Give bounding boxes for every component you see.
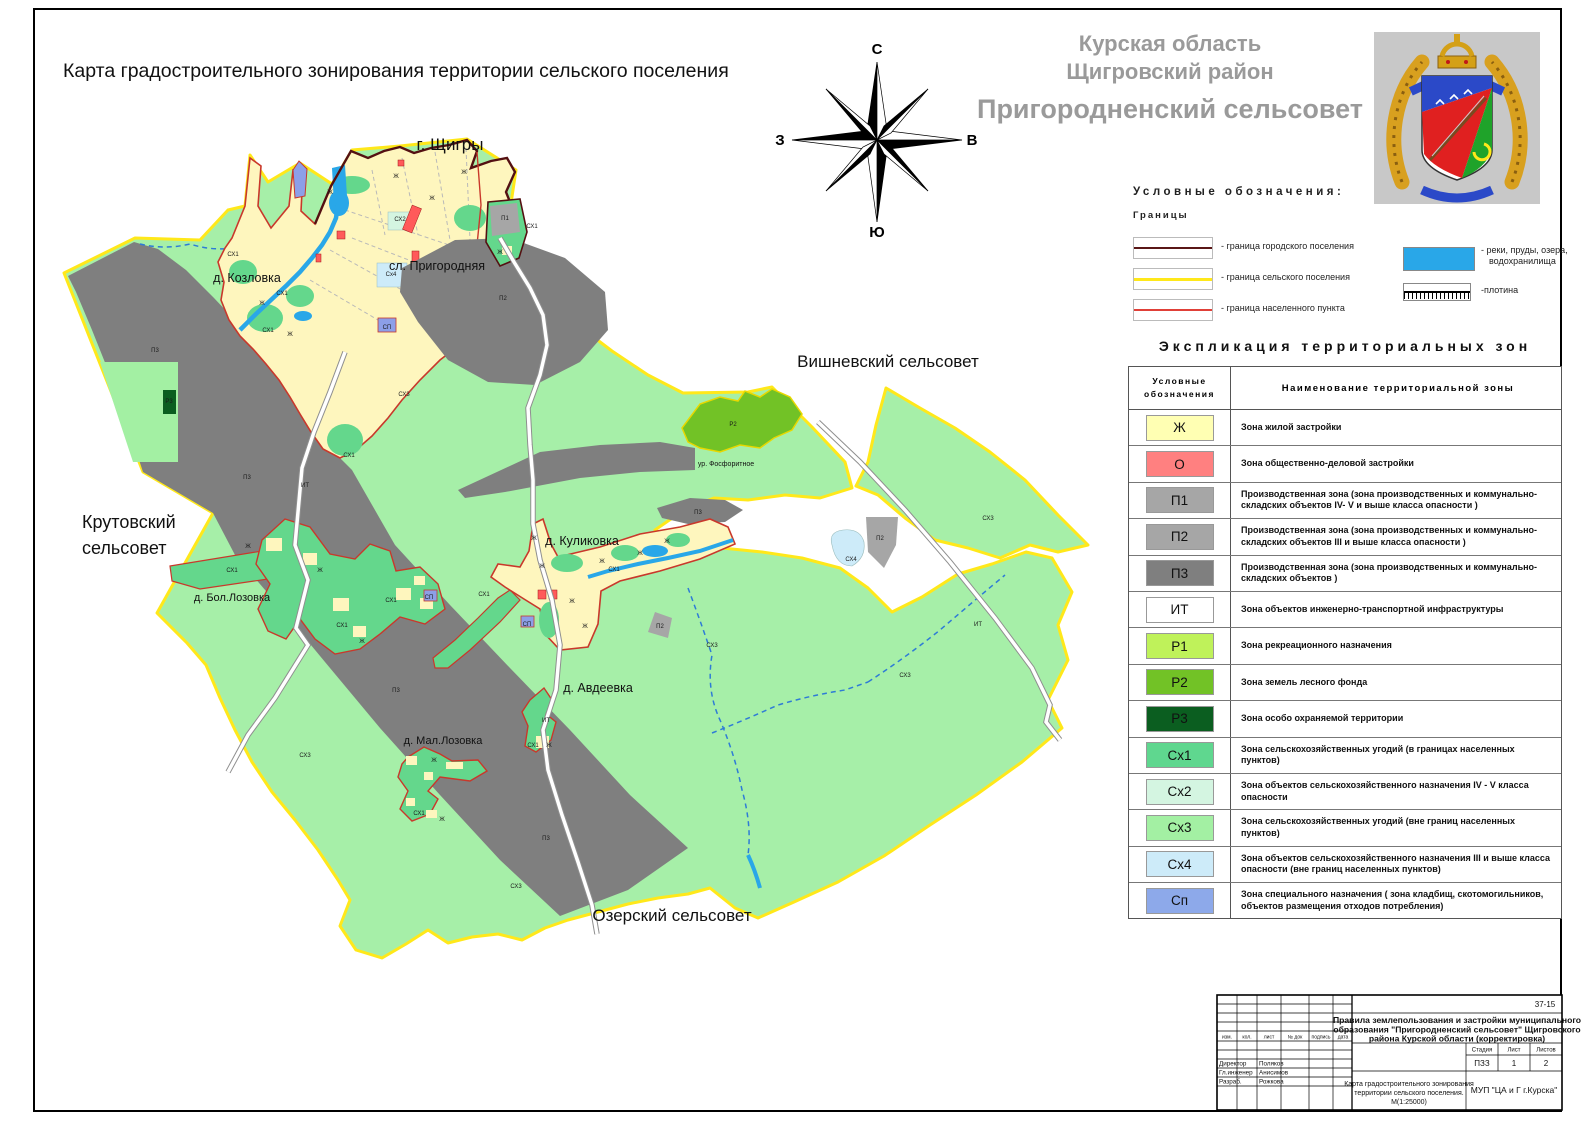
- zone-code-label: СХ1: [227, 252, 239, 258]
- zone-code-label: Ж: [317, 568, 323, 574]
- zone-row: Р1Зона рекреационного назначения: [1129, 628, 1561, 664]
- zone-code-label: Ж: [439, 817, 445, 823]
- zone-code-label: ИТ: [542, 718, 550, 724]
- organization: МУП "ЦА и Г г.Курска": [1471, 1085, 1558, 1095]
- zone-code-label: Ж: [539, 564, 545, 570]
- place-label: д. Бол.Лозовка: [194, 592, 271, 604]
- svg-text:ПЗЗ: ПЗЗ: [1474, 1059, 1490, 1068]
- title-block: 37-15 Правила землепользования и застрой…: [1217, 995, 1581, 1110]
- tb-col-header: подпись: [1312, 1035, 1331, 1041]
- zone-code-label: СХ3: [398, 392, 410, 398]
- zone-description: Производственная зона (зона производстве…: [1241, 562, 1555, 585]
- zone-description: Зона земель лесного фонда: [1241, 677, 1367, 689]
- zone-code-label: Ж: [531, 536, 537, 542]
- zone-code-label: Ж: [461, 170, 467, 176]
- place-label: д. Авдеевка: [563, 681, 633, 695]
- zone-code-label: П3: [694, 510, 702, 516]
- zone-swatch: Р3: [1146, 706, 1214, 732]
- legend-title: Условные обозначения:: [1133, 186, 1563, 198]
- zone-code-label: П2: [656, 624, 664, 630]
- tb-signer-role: Разраб.: [1219, 1078, 1242, 1086]
- zone-description: Зона жилой застройки: [1241, 422, 1341, 434]
- zone-swatch: Сп: [1146, 888, 1214, 914]
- zone-code-label: Ж: [637, 551, 643, 557]
- tb-signer-name: Рожкова: [1259, 1079, 1284, 1086]
- zone-code-label: ИТ: [301, 483, 309, 489]
- zone-swatch: Р2: [1146, 669, 1214, 695]
- zone-code-label: ИТ: [974, 622, 982, 628]
- zone-code-label: П3: [243, 475, 251, 481]
- compass-north: С: [872, 41, 883, 58]
- svg-text:Карта градостроительного зонир: Карта градостроительного зонирования: [1344, 1081, 1474, 1088]
- kulikovka-pond: [642, 545, 668, 557]
- map-title: Карта градостроительного зонирования тер…: [63, 60, 729, 83]
- zone-description: Зона рекреационного назначения: [1241, 640, 1392, 652]
- zone-code-label: СХ1: [608, 567, 620, 573]
- zone-code-label: Р2: [729, 422, 737, 428]
- svg-text:Листов: Листов: [1536, 1048, 1556, 1054]
- zone-swatch: Ж: [1146, 415, 1214, 441]
- place-label: Озерский сельсовет: [592, 906, 751, 925]
- pond-west: [294, 311, 312, 321]
- zone-code-label: П2: [876, 536, 884, 542]
- zone-row: СпЗона специального назначения ( зона кл…: [1129, 883, 1561, 918]
- zone-code-label: СХ1: [526, 224, 538, 230]
- zone-description: Зона особо охраняемой территории: [1241, 713, 1403, 725]
- water-swatch: [1403, 247, 1475, 271]
- zone-code-label: П3: [542, 836, 550, 842]
- zone-code-label: Ж: [259, 301, 265, 307]
- place-label: Вишневский сельсовет: [797, 352, 979, 371]
- zone-code-label: Ж: [546, 743, 552, 749]
- legend-subtitle: Границы: [1133, 210, 1563, 221]
- place-label: ур. Фосфоритное: [698, 461, 754, 468]
- zone-swatch: Сх1: [1146, 742, 1214, 768]
- zone-code-label: П3: [151, 348, 159, 354]
- zone-swatch: П1: [1146, 487, 1214, 513]
- zone-description: Зона общественно-деловой застройки: [1241, 458, 1414, 470]
- page: СХ1ЖСХ1СХ1ЖП3Р3П3ИТСХ3СХ2Сх4ЖЖЖЖЖП1СХ1СП…: [0, 0, 1590, 1122]
- special-zone-spike: [293, 161, 307, 198]
- tb-col-header: № док: [1288, 1035, 1303, 1041]
- dam-icon: [1403, 283, 1471, 301]
- zone-code-label: Ж: [599, 559, 605, 565]
- zone-code-label: Ж: [497, 250, 503, 256]
- zone-code-label: Р3: [165, 399, 173, 405]
- settlement-name: Пригородненский сельсовет: [975, 94, 1365, 125]
- place-label: д. Куликовка: [545, 534, 619, 548]
- tb-col-header: дата: [1338, 1035, 1349, 1041]
- zone-code-label: СХ1: [343, 453, 355, 459]
- zone-swatch: О: [1146, 451, 1214, 477]
- zone-code-label: Ж: [327, 190, 333, 196]
- zone-swatch: Р1: [1146, 633, 1214, 659]
- industrial-patch-3: [866, 517, 898, 568]
- tb-col-header: изм.: [1222, 1035, 1232, 1041]
- zone-swatch: П3: [1146, 560, 1214, 586]
- svg-text:Лист: Лист: [1507, 1048, 1520, 1054]
- svg-text:М(1:25000): М(1:25000): [1391, 1099, 1427, 1106]
- zone-description: Зона специального назначения ( зона клад…: [1241, 889, 1555, 912]
- place-label: г. Щигры: [417, 135, 484, 154]
- zone-swatch: П2: [1146, 524, 1214, 550]
- zone-swatch: Сх4: [1146, 851, 1214, 877]
- boundary-swatch: [1133, 299, 1213, 321]
- zone-code-label: Ж: [429, 196, 435, 202]
- boundary-swatch: [1133, 268, 1213, 290]
- zone-code-label: СХ2: [394, 217, 406, 223]
- place-label: сельсовет: [82, 538, 167, 558]
- zone-code-label: СХ3: [706, 643, 718, 649]
- zone-code-label: Ж: [582, 624, 588, 630]
- tb-signer-role: Гл.инженер: [1219, 1070, 1253, 1077]
- place-label: д. Мал.Лозовка: [404, 735, 484, 747]
- zone-code-label: СХ1: [385, 598, 397, 604]
- zone-description: Зона объектов сельскохозяйственного назн…: [1241, 853, 1555, 876]
- svg-text:территории сельского поселения: территории сельского поселения.: [1354, 1090, 1463, 1097]
- zone-code-label: СХ3: [982, 516, 994, 522]
- zone-row: ИТЗона объектов инженерно-транспортной и…: [1129, 592, 1561, 628]
- zone-row: Сх1Зона сельскохозяйственных угодий (в г…: [1129, 738, 1561, 774]
- svg-text:2: 2: [1544, 1059, 1549, 1068]
- zone-code-label: П2: [499, 296, 507, 302]
- boundary-label: - граница населенного пункта: [1221, 303, 1345, 313]
- zones-table: Условные обозначения Наименование террит…: [1128, 366, 1562, 919]
- place-label: д. Козловка: [213, 271, 281, 285]
- zone-code-label: Ж: [287, 332, 293, 338]
- zone-code-label: СХ1: [262, 328, 274, 334]
- tb-col-header: кол.: [1242, 1035, 1251, 1041]
- compass-east: В: [967, 132, 978, 149]
- boundary-legend-item: - граница сельского поселения: [1133, 266, 1383, 297]
- zone-code-label: СХ3: [899, 673, 911, 679]
- compass-rose: С Ю З В: [775, 41, 977, 241]
- boundary-label: - граница городского поселения: [1221, 241, 1354, 251]
- zone-code-label: СХ3: [299, 753, 311, 759]
- svg-text:Правила землепользования и зас: Правила землепользования и застройки мун…: [1333, 1015, 1581, 1025]
- tb-signer-name: Анисимов: [1259, 1070, 1289, 1077]
- zones-table-header: Условные обозначения Наименование террит…: [1129, 367, 1561, 410]
- zone-description: Зона объектов сельскохозяйственного назн…: [1241, 780, 1555, 803]
- zone-row: Сх3Зона сельскохозяйственных угодий (вне…: [1129, 810, 1561, 846]
- zone-description: Производственная зона (зона производстве…: [1241, 525, 1555, 548]
- boundary-label: - граница сельского поселения: [1221, 272, 1350, 282]
- zone-row: Сх2Зона объектов сельскохозяйственного н…: [1129, 774, 1561, 810]
- zone-row: П2Производственная зона (зона производст…: [1129, 519, 1561, 555]
- zone-code-label: Ж: [359, 639, 365, 645]
- water-label: - реки, пруды, озера, водохранилища: [1481, 245, 1568, 267]
- zone-code-label: П3: [392, 688, 400, 694]
- zone-row: П3Производственная зона (зона производст…: [1129, 556, 1561, 592]
- zone-code-label: Ж: [569, 599, 575, 605]
- zone-row: П1Производственная зона (зона производст…: [1129, 483, 1561, 519]
- zone-swatch: Сх2: [1146, 779, 1214, 805]
- zone-code-label: СХ1: [527, 743, 539, 749]
- coat-of-arms: [1374, 32, 1540, 209]
- place-label: Крутовский: [82, 512, 176, 532]
- zone-code-label: СХ1: [276, 291, 288, 297]
- zone-code-label: СХ4: [845, 557, 857, 563]
- boundary-legend-items: - граница городского поселения- граница …: [1133, 235, 1383, 335]
- zone-code-label: П1: [501, 216, 509, 222]
- svg-text:1: 1: [1512, 1059, 1517, 1068]
- place-label: сл. Пригородняя: [389, 259, 485, 273]
- legend: Условные обозначения: Границы - граница …: [1133, 186, 1563, 335]
- zone-code-label: СХ1: [413, 811, 425, 817]
- dam-label: -плотина: [1481, 285, 1518, 295]
- zone-code-label: СП: [383, 325, 392, 331]
- svg-text:района Курской области (коррек: района Курской области (корректировка): [1369, 1034, 1545, 1044]
- zone-row: ОЗона общественно-деловой застройки: [1129, 446, 1561, 482]
- zone-code-label: СХ1: [478, 592, 490, 598]
- zone-description: Зона объектов инженерно-транспортной инф…: [1241, 604, 1503, 616]
- boundary-legend-item: - граница городского поселения: [1133, 235, 1383, 266]
- tb-col-header: лист: [1264, 1035, 1275, 1041]
- zone-code-label: СХ1: [336, 623, 348, 629]
- zone-code-label: Ж: [393, 174, 399, 180]
- zone-swatch: Сх3: [1146, 815, 1214, 841]
- region-name: Курская область: [975, 30, 1365, 58]
- zone-row: ЖЗона жилой застройки: [1129, 410, 1561, 446]
- zone-code-label: Ж: [431, 758, 437, 764]
- compass-west: З: [775, 132, 784, 149]
- zone-row: Сх4Зона объектов сельскохозяйственного н…: [1129, 847, 1561, 883]
- zone-code-label: СХ1: [226, 568, 238, 574]
- compass-south: Ю: [869, 224, 884, 241]
- doc-number: 37-15: [1535, 1000, 1556, 1009]
- tb-signer-role: Директор: [1219, 1061, 1247, 1068]
- tb-signer-name: Поляков: [1259, 1061, 1284, 1068]
- zone-code-label: СХ3: [510, 884, 522, 890]
- zone-description: Зона сельскохозяйственных угодий (в гран…: [1241, 744, 1555, 767]
- zone-description: Зона сельскохозяйственных угодий (вне гр…: [1241, 816, 1555, 839]
- zone-code-label: СП: [523, 622, 532, 628]
- zone-row: Р2Зона земель лесного фонда: [1129, 665, 1561, 701]
- zone-row: Р3Зона особо охраняемой территории: [1129, 701, 1561, 737]
- zone-swatch: ИТ: [1146, 597, 1214, 623]
- region-header: Курская область Щигровский район Пригоро…: [975, 30, 1365, 125]
- zone-code-label: Ж: [664, 539, 670, 545]
- svg-text:Стадия: Стадия: [1472, 1048, 1492, 1054]
- district-name: Щигровский район: [975, 58, 1365, 86]
- zone-code-label: СП: [425, 595, 434, 601]
- zone-code-label: Ж: [245, 544, 251, 550]
- boundary-swatch: [1133, 237, 1213, 259]
- zones-table-title: Экспликация территориальных зон: [1128, 338, 1562, 354]
- zone-description: Производственная зона (зона производстве…: [1241, 489, 1555, 512]
- boundary-legend-item: - граница населенного пункта: [1133, 297, 1383, 328]
